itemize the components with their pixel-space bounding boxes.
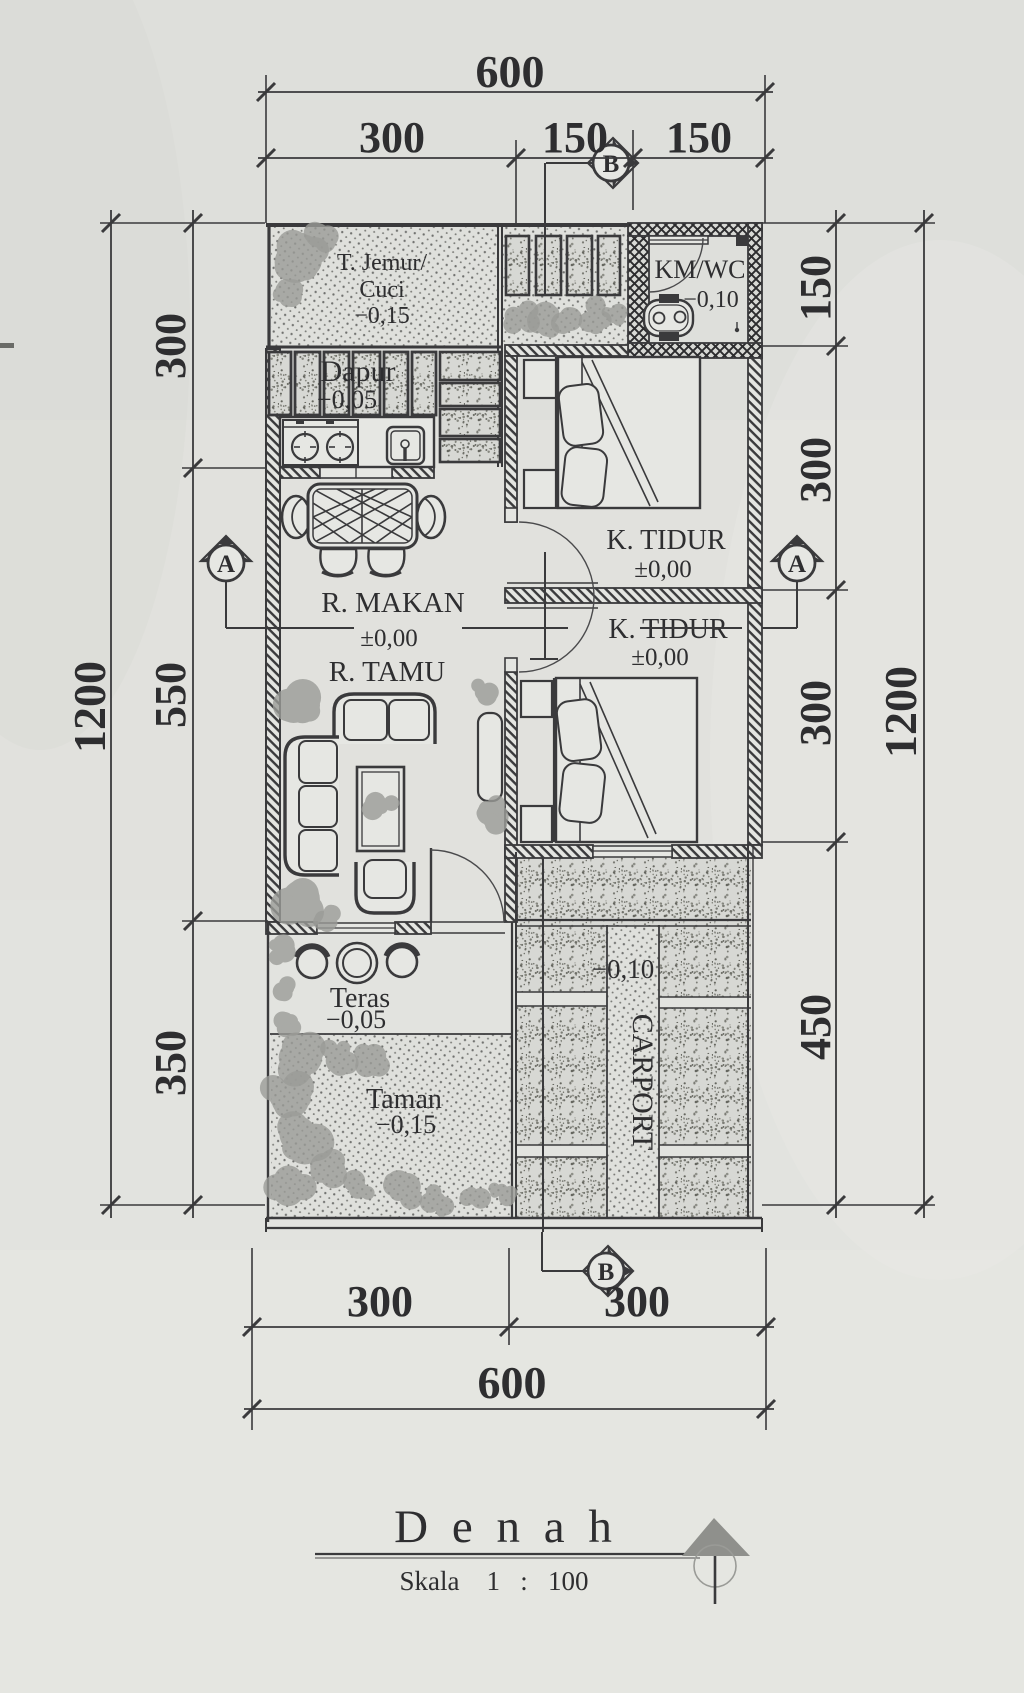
svg-text:R. TAMU: R. TAMU xyxy=(329,656,445,688)
svg-text:−0,15: −0,15 xyxy=(354,303,410,329)
svg-text:CARPORT: CARPORT xyxy=(626,1014,659,1151)
svg-text:1200: 1200 xyxy=(875,666,926,758)
svg-text:K. TIDUR: K. TIDUR xyxy=(606,525,726,556)
svg-text:150: 150 xyxy=(542,113,608,162)
svg-text:−0,10: −0,10 xyxy=(592,954,654,984)
svg-text:300: 300 xyxy=(604,1277,670,1326)
svg-text:300: 300 xyxy=(359,113,425,162)
svg-text:300: 300 xyxy=(347,1277,413,1326)
svg-text:D e n a h: D e n a h xyxy=(394,1501,618,1553)
svg-text:−0,05: −0,05 xyxy=(326,1005,386,1034)
svg-text:1200: 1200 xyxy=(64,661,115,753)
svg-text:Skala 1 : 100: Skala 1 : 100 xyxy=(400,1566,589,1596)
svg-text:K. TIDUR: K. TIDUR xyxy=(608,614,728,645)
svg-text:T. Jemur/: T. Jemur/ xyxy=(337,250,428,276)
svg-text:KM/WC: KM/WC xyxy=(655,255,746,284)
svg-text:±0,00: ±0,00 xyxy=(360,625,417,652)
svg-text:350: 350 xyxy=(146,1030,195,1096)
svg-text:−0,10: −0,10 xyxy=(683,287,739,313)
svg-text:±0,00: ±0,00 xyxy=(634,556,691,583)
svg-text:600: 600 xyxy=(478,1357,547,1408)
svg-text:A: A xyxy=(217,551,235,578)
svg-text:−0,05: −0,05 xyxy=(317,385,377,414)
svg-text:R. MAKAN: R. MAKAN xyxy=(321,587,464,619)
svg-text:550: 550 xyxy=(146,662,195,728)
svg-text:300: 300 xyxy=(791,680,840,746)
svg-text:150: 150 xyxy=(791,255,840,321)
svg-text:300: 300 xyxy=(146,313,195,379)
svg-text:A: A xyxy=(788,551,806,578)
svg-text:Dapur: Dapur xyxy=(321,355,396,388)
svg-text:300: 300 xyxy=(791,437,840,503)
svg-text:600: 600 xyxy=(476,46,545,97)
svg-text:450: 450 xyxy=(791,994,840,1060)
svg-text:Cuci: Cuci xyxy=(359,277,405,303)
svg-text:150: 150 xyxy=(666,113,732,162)
svg-text:±0,00: ±0,00 xyxy=(631,644,688,671)
svg-text:−0,15: −0,15 xyxy=(376,1110,436,1139)
